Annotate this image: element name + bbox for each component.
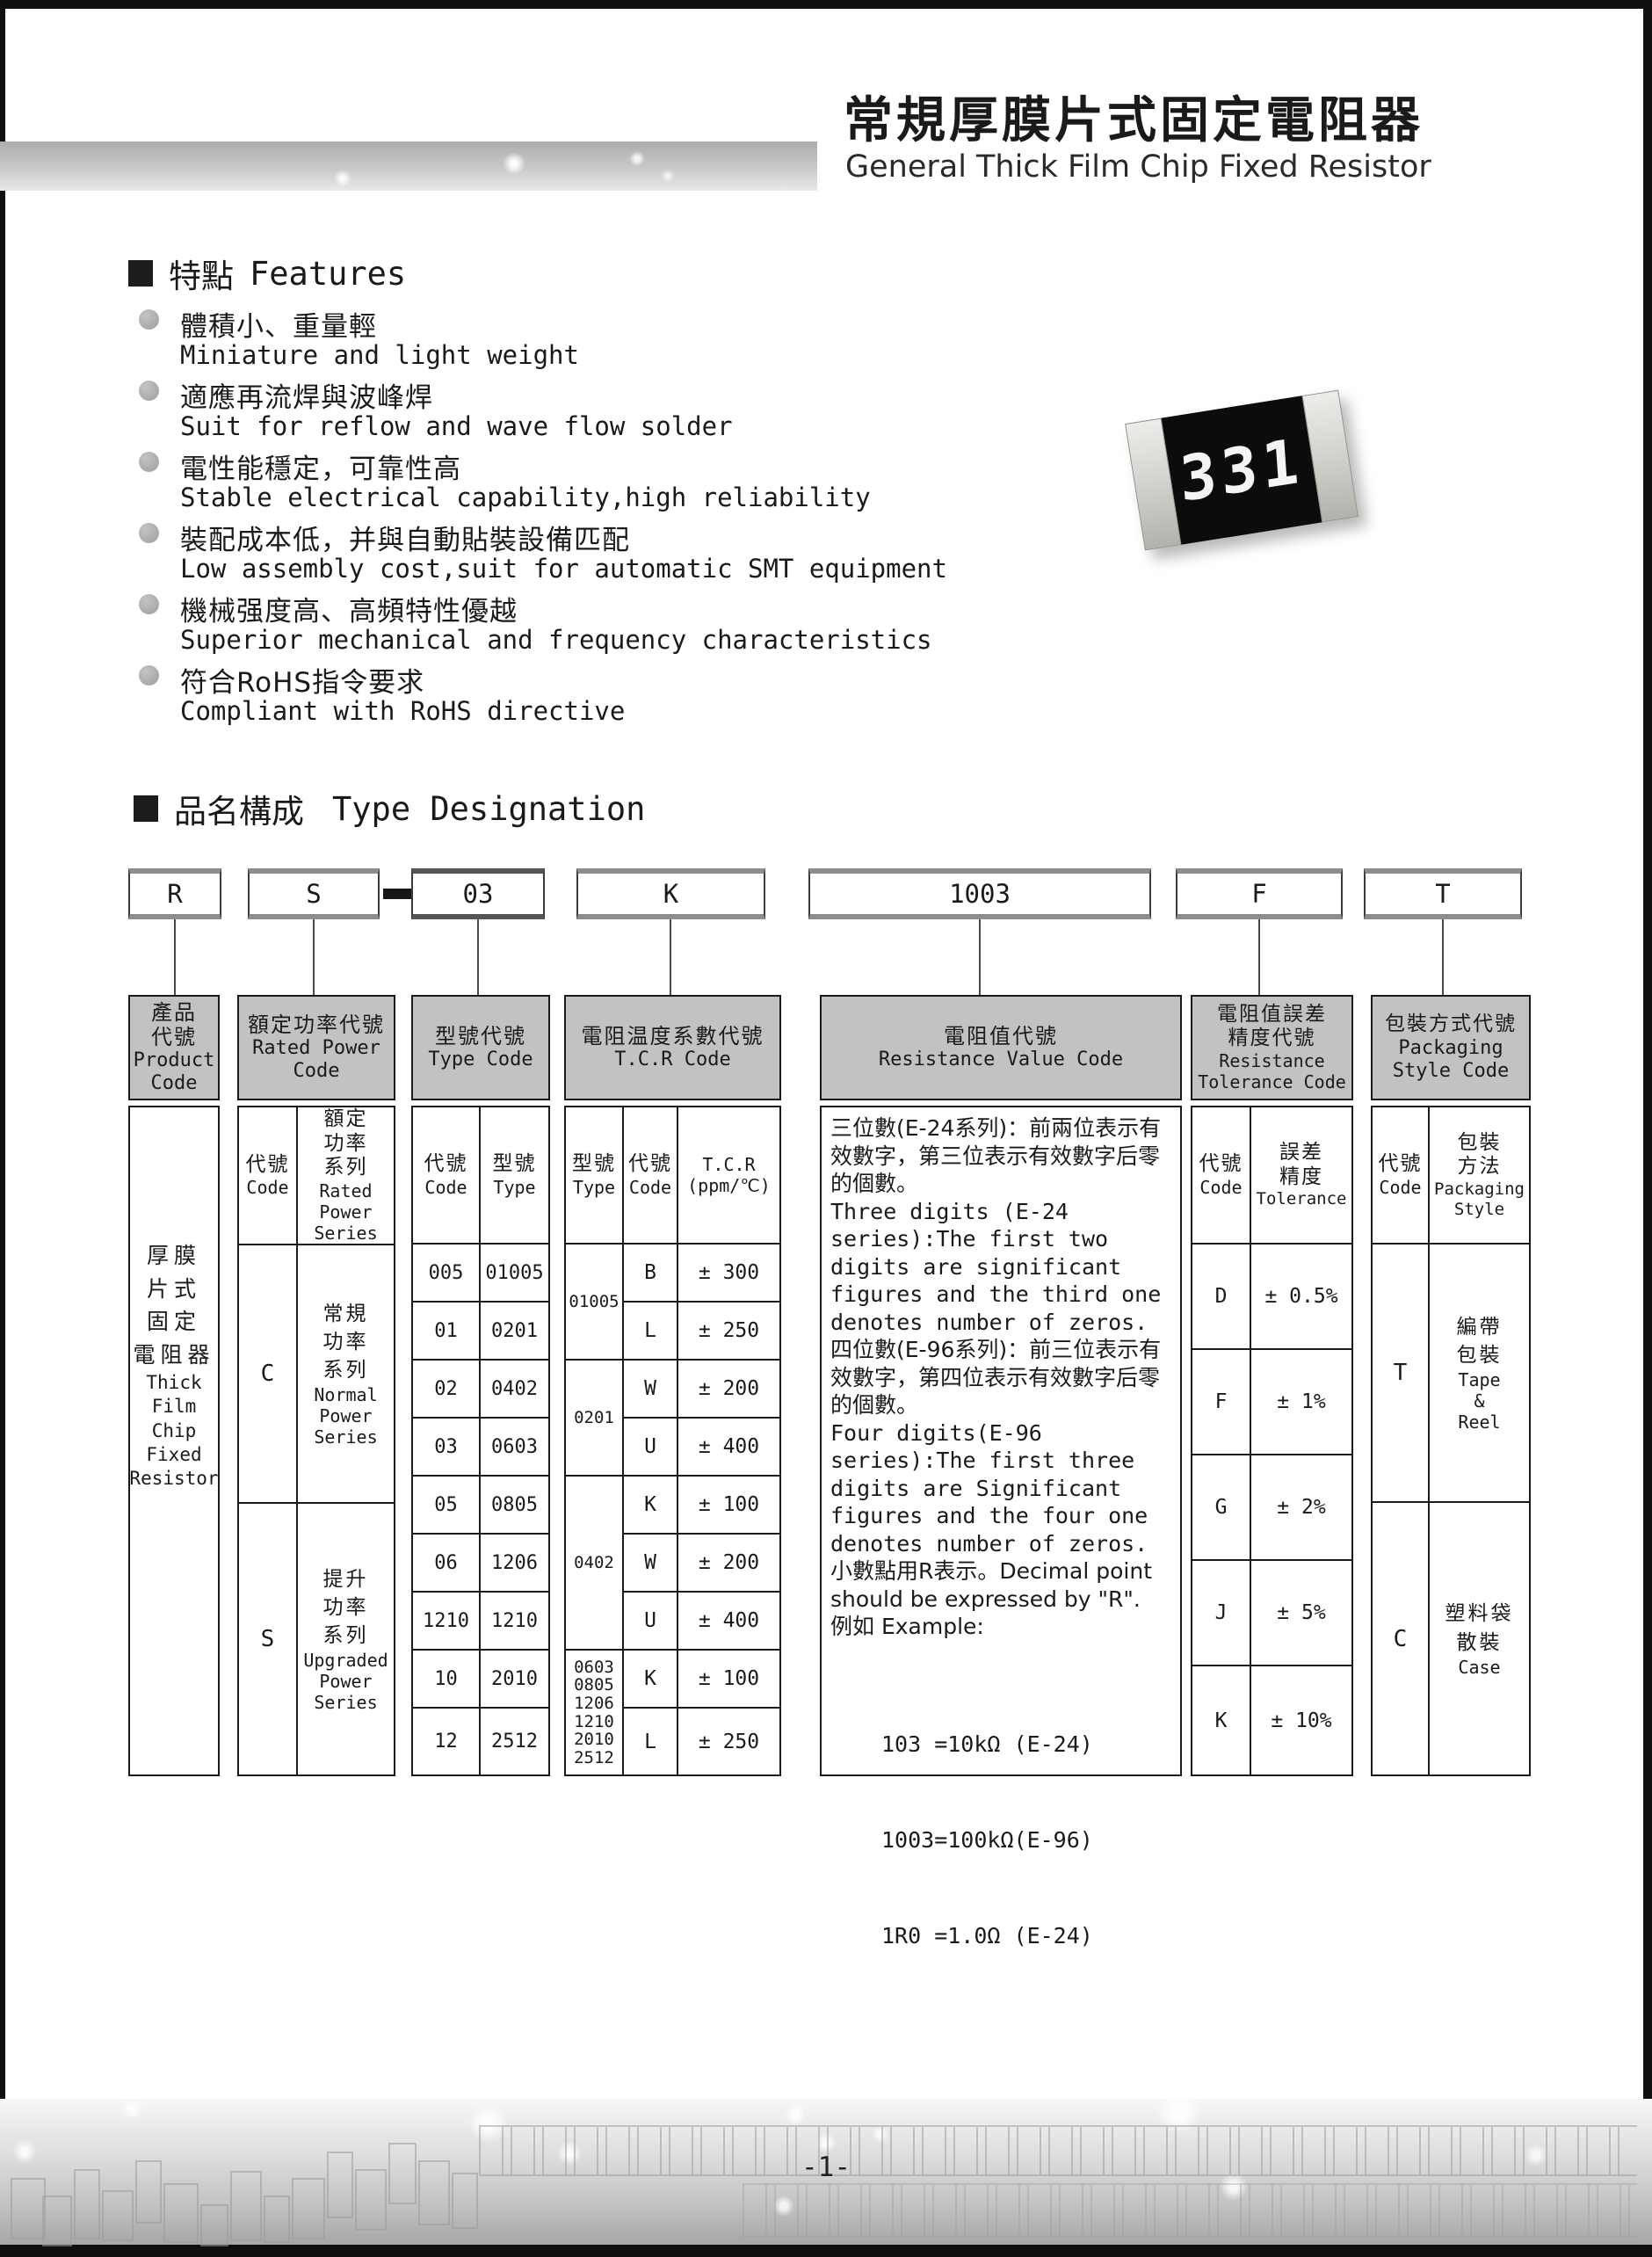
tcr-code: K xyxy=(623,1476,677,1534)
column-header-rated-power: 額定功率代號 Rated Power Code xyxy=(237,995,395,1100)
example-lines: 103 =10kΩ (E-24) 1003=100kΩ(E-96) 1R0 =1… xyxy=(881,1666,1171,2016)
type-code-table: 代號 Code 型號 Type 00501005 010201 020402 0… xyxy=(411,1106,550,1776)
type-size-value: 1206 xyxy=(480,1534,549,1592)
sub-header-cn: 代號 xyxy=(239,1153,296,1178)
tolerance-value: ± 10% xyxy=(1250,1666,1352,1775)
tcr-value: ± 100 xyxy=(677,1650,780,1708)
tolerance-value: ± 1% xyxy=(1250,1349,1352,1455)
tcr-code: B xyxy=(623,1244,677,1302)
connector-line xyxy=(1442,919,1444,995)
sub-header-cn: 代號 xyxy=(1373,1152,1428,1177)
sub-header-cn: 誤差 精度 xyxy=(1251,1141,1351,1189)
sub-header-cn: 代號 xyxy=(1192,1152,1250,1177)
table-row: 代號 Code 誤差 精度 Tolerance xyxy=(1192,1107,1352,1244)
column-body-tolerance: 代號 Code 誤差 精度 Tolerance D± 0.5% F± 1% G±… xyxy=(1191,1106,1353,1776)
packaging-style-cn: 編帶 包裝 xyxy=(1430,1313,1529,1369)
table-row: D± 0.5% xyxy=(1192,1244,1352,1349)
type-code-value: 005 xyxy=(412,1244,480,1302)
tcr-value: ± 200 xyxy=(677,1360,780,1418)
footer-decoration xyxy=(200,2204,228,2246)
feature-item: 適應再流焊與波峰焊 Suit for reflow and wave flow … xyxy=(139,375,1105,446)
tcr-value: ± 100 xyxy=(677,1476,780,1534)
table-row: 122512 xyxy=(412,1708,549,1775)
feature-text-cn: 體積小、重量輕 xyxy=(180,304,377,344)
packaging-style-cn: 塑料袋 散裝 xyxy=(1430,1600,1529,1656)
footer-decoration xyxy=(11,2178,46,2239)
features-heading-en: Features xyxy=(250,255,406,293)
feature-item: 電性能穩定，可靠性高 Stable electrical capability,… xyxy=(139,446,1105,517)
connector-line xyxy=(313,919,315,995)
packaging-style-en: Tape & Reel xyxy=(1430,1369,1529,1433)
sub-header-en: T.C.R (ppm/℃) xyxy=(678,1154,779,1196)
sub-header-cn: 型號 xyxy=(566,1152,622,1177)
column-header-cn: 包裝方式代號 xyxy=(1385,1012,1517,1036)
packaging-table: 代號 Code 包裝 方法 Packaging Style T 編帶 包裝 Ta… xyxy=(1371,1106,1531,1776)
resistor-body: 331 xyxy=(1162,396,1322,545)
type-designation-heading-en: Type Designation xyxy=(332,790,645,828)
feature-text-cn: 電性能穩定，可靠性高 xyxy=(180,446,461,486)
type-size-value: 0805 xyxy=(480,1476,549,1534)
footer-decoration xyxy=(264,2195,290,2243)
footer-decoration xyxy=(163,2183,199,2243)
features-heading: 特點 Features xyxy=(128,250,406,297)
packaging-style-en: Case xyxy=(1430,1657,1529,1678)
column-body-packaging: 代號 Code 包裝 方法 Packaging Style T 編帶 包裝 Ta… xyxy=(1371,1106,1531,1776)
column-header-en: Resistance Tolerance Code xyxy=(1198,1050,1346,1092)
tolerance-table: 代號 Code 誤差 精度 Tolerance D± 0.5% F± 1% G±… xyxy=(1191,1106,1353,1776)
resistor-chip-image: 331 xyxy=(1125,390,1359,551)
table-row: 型號 Type 代號 Code T.C.R (ppm/℃) xyxy=(565,1107,780,1244)
column-header-product: 產品 代號 Product Code xyxy=(128,995,220,1100)
tolerance-code: J xyxy=(1192,1560,1250,1666)
type-code-value: 10 xyxy=(412,1650,480,1708)
tcr-value: ± 250 xyxy=(677,1708,780,1775)
value-rule-cn: 三位數(E-24系列)：前兩位表示有效數字，第三位表示有效數字后零的個數。 xyxy=(830,1114,1171,1198)
page-border-left xyxy=(0,0,5,2257)
value-rule-cn: 四位數(E-96系列)：前三位表示有效數字，第四位表示有效數字后零的個數。 xyxy=(830,1336,1171,1419)
type-designation-heading: 品名構成 Type Designation xyxy=(134,785,645,832)
feature-text-en: Low assembly cost,suit for automatic SMT… xyxy=(180,554,947,584)
tolerance-value: ± 0.5% xyxy=(1250,1244,1352,1349)
tcr-code: L xyxy=(623,1302,677,1360)
tcr-code: U xyxy=(623,1418,677,1476)
sub-header-en: Packaging Style xyxy=(1430,1179,1529,1220)
page-subtitle: General Thick Film Chip Fixed Resistor xyxy=(845,149,1431,185)
features-heading-cn: 特點 xyxy=(169,250,234,297)
power-series-en: Upgraded Power Series xyxy=(298,1650,394,1713)
feature-text-cn: 裝配成本低，并與自動貼裝設備匹配 xyxy=(180,518,630,557)
code-box-type: 03 xyxy=(411,868,545,919)
column-header-cn: 電阻值誤差 精度代號 xyxy=(1217,1003,1327,1050)
column-header-tcr: 電阻温度系數代號 T.C.R Code xyxy=(564,995,781,1100)
tcr-value: ± 250 xyxy=(677,1302,780,1360)
column-header-tolerance: 電阻值誤差 精度代號 Resistance Tolerance Code xyxy=(1191,995,1353,1100)
feature-text-en: Miniature and light weight xyxy=(180,340,579,370)
table-row: T 編帶 包裝 Tape & Reel xyxy=(1372,1244,1530,1502)
sub-header-en: Type xyxy=(481,1177,548,1198)
table-row: 061206 xyxy=(412,1534,549,1592)
tolerance-code: F xyxy=(1192,1349,1250,1455)
tolerance-value: ± 2% xyxy=(1250,1455,1352,1560)
footer-decoration xyxy=(292,2178,325,2239)
sub-header-en: Code xyxy=(1373,1177,1428,1198)
type-code-value: 12 xyxy=(412,1708,480,1775)
column-header-cn: 額定功率代號 xyxy=(248,1012,385,1037)
bullet-icon xyxy=(139,381,159,401)
code-box-product: R xyxy=(128,868,221,919)
header-gradient-band xyxy=(0,142,817,191)
connector-line xyxy=(477,919,479,995)
bullet-icon xyxy=(139,594,159,614)
power-series-cn: 提升 功率 系列 xyxy=(298,1565,394,1651)
type-size-value: 2010 xyxy=(480,1650,549,1708)
tolerance-code: D xyxy=(1192,1244,1250,1349)
tcr-type: 0201 xyxy=(565,1360,623,1476)
type-code-value: 1210 xyxy=(412,1592,480,1650)
column-header-en: Resistance Value Code xyxy=(879,1049,1123,1071)
sub-header-cn: 包裝 方法 xyxy=(1430,1131,1529,1179)
code-box-tcr: K xyxy=(576,868,765,919)
example-line: 1003=100kΩ(E-96) xyxy=(881,1825,1171,1856)
sub-header-en: Code xyxy=(413,1177,479,1198)
page-border-right xyxy=(1643,0,1652,2257)
feature-item: 體積小、重量輕 Miniature and light weight xyxy=(139,304,1105,374)
page-border-bottom xyxy=(0,2245,1652,2257)
connector-line xyxy=(670,919,671,995)
table-row: C 常規 功率 系列 Normal Power Series xyxy=(238,1245,395,1503)
bullet-icon xyxy=(139,665,159,686)
footer-decoration xyxy=(42,2195,72,2246)
feature-item: 符合RoHS指令要求 Compliant with RoHS directive xyxy=(139,660,1105,730)
feature-item: 裝配成本低，并與自動貼裝設備匹配 Low assembly cost,suit … xyxy=(139,518,1105,588)
sub-header-cn: 額定 功率 系列 xyxy=(298,1107,394,1180)
column-body-rated-power: 代號 Code 額定 功率 系列 Rated Power Series C 常規… xyxy=(237,1106,395,1776)
rated-power-table: 代號 Code 額定 功率 系列 Rated Power Series C 常規… xyxy=(237,1106,395,1776)
table-row: S 提升 功率 系列 Upgraded Power Series xyxy=(238,1503,395,1775)
power-code: S xyxy=(238,1503,297,1775)
column-body-resistance-value: 三位數(E-24系列)：前兩位表示有效數字，第三位表示有效數字后零的個數。 Th… xyxy=(820,1106,1182,1776)
feature-text-en: Stable electrical capability,high reliab… xyxy=(180,483,871,512)
column-header-resistance-value: 電阻值代號 Resistance Value Code xyxy=(820,995,1182,1100)
type-designation-heading-cn: 品名構成 xyxy=(174,785,304,832)
tcr-type: 0603 0805 1206 1210 2010 2512 xyxy=(565,1650,623,1775)
table-row: 代號 Code 額定 功率 系列 Rated Power Series xyxy=(238,1107,395,1245)
feature-text-en: Superior mechanical and frequency charac… xyxy=(180,625,932,655)
type-size-value: 0201 xyxy=(480,1302,549,1360)
footer-decoration xyxy=(743,2183,1637,2238)
sub-header-en: Code xyxy=(1192,1177,1250,1198)
example-label: 例如 Example: xyxy=(830,1613,1171,1641)
tcr-value: ± 400 xyxy=(677,1418,780,1476)
table-row: 102010 xyxy=(412,1650,549,1708)
table-row: 0402 K ± 100 xyxy=(565,1476,780,1534)
type-code-value: 02 xyxy=(412,1360,480,1418)
page-number: -1- xyxy=(0,2152,1652,2183)
column-header-cn: 電阻值代號 xyxy=(944,1024,1058,1049)
table-row: 0201 W ± 200 xyxy=(565,1360,780,1418)
tcr-table: 型號 Type 代號 Code T.C.R (ppm/℃) 01005 B ± … xyxy=(564,1106,781,1776)
column-body-type-code: 代號 Code 型號 Type 00501005 010201 020402 0… xyxy=(411,1106,550,1776)
table-row: J± 5% xyxy=(1192,1560,1352,1666)
product-description-en: Thick Film Chip Fixed Resistor xyxy=(129,1371,218,1491)
power-series-cn: 常規 功率 系列 xyxy=(298,1300,394,1385)
page-border-top xyxy=(0,0,1652,9)
power-series-en: Normal Power Series xyxy=(298,1384,394,1448)
bullet-icon xyxy=(139,309,159,330)
packaging-code: T xyxy=(1372,1244,1429,1502)
table-row: 020402 xyxy=(412,1360,549,1418)
tcr-type: 01005 xyxy=(565,1244,623,1360)
bullet-icon xyxy=(139,452,159,472)
value-rule-en: Four digits(E-96 series):The first three… xyxy=(830,1419,1171,1558)
column-header-en: T.C.R Code xyxy=(614,1049,730,1071)
type-code-value: 06 xyxy=(412,1534,480,1592)
table-row: 01005 B ± 300 xyxy=(565,1244,780,1302)
table-row: 代號 Code 包裝 方法 Packaging Style xyxy=(1372,1107,1530,1244)
feature-text-cn: 符合RoHS指令要求 xyxy=(180,660,424,700)
tcr-value: ± 300 xyxy=(677,1244,780,1302)
column-header-en: Product Code xyxy=(134,1049,215,1095)
page-title: 常規厚膜片式固定電阻器 xyxy=(844,81,1424,152)
feature-text-en: Suit for reflow and wave flow solder xyxy=(180,411,733,441)
feature-text-en: Compliant with RoHS directive xyxy=(180,696,625,726)
tolerance-code: G xyxy=(1192,1455,1250,1560)
power-code: C xyxy=(238,1245,297,1503)
tcr-code: U xyxy=(623,1592,677,1650)
feature-text-cn: 機械强度高、高頻特性優越 xyxy=(180,589,518,628)
sub-header-en: Code xyxy=(624,1177,677,1198)
tcr-code: W xyxy=(623,1534,677,1592)
resistor-marking: 331 xyxy=(1177,425,1305,516)
sub-header-cn: 代號 xyxy=(413,1152,479,1177)
sub-header-en: Rated Power Series xyxy=(298,1180,394,1244)
column-header-cn: 型號代號 xyxy=(435,1024,526,1049)
feature-item: 機械强度高、高頻特性優越 Superior mechanical and fre… xyxy=(139,589,1105,659)
datasheet-page: 常規厚膜片式固定電阻器 General Thick Film Chip Fixe… xyxy=(0,0,1652,2257)
table-row: K± 10% xyxy=(1192,1666,1352,1775)
connector-line xyxy=(174,919,176,995)
column-header-en: Packaging Style Code xyxy=(1393,1037,1509,1083)
table-row: G± 2% xyxy=(1192,1455,1352,1560)
tcr-code: K xyxy=(623,1650,677,1708)
code-separator-dash xyxy=(383,889,411,899)
type-size-value: 0603 xyxy=(480,1418,549,1476)
table-row: C 塑料袋 散裝 Case xyxy=(1372,1502,1530,1775)
column-body-tcr: 型號 Type 代號 Code T.C.R (ppm/℃) 01005 B ± … xyxy=(564,1106,781,1776)
type-size-value: 2512 xyxy=(480,1708,549,1775)
table-row: 00501005 xyxy=(412,1244,549,1302)
value-rule-en: Three digits (E-24 series):The first two… xyxy=(830,1198,1171,1337)
type-size-value: 0402 xyxy=(480,1360,549,1418)
bullet-icon xyxy=(139,523,159,543)
sub-header-cn: 代號 xyxy=(624,1152,677,1177)
table-row: 代號 Code 型號 Type xyxy=(412,1107,549,1244)
footer-decoration xyxy=(102,2190,134,2241)
tcr-value: ± 200 xyxy=(677,1534,780,1592)
table-row: 12101210 xyxy=(412,1592,549,1650)
table-row: 030603 xyxy=(412,1418,549,1476)
tcr-code: L xyxy=(623,1708,677,1775)
tolerance-code: K xyxy=(1192,1666,1250,1775)
type-size-value: 01005 xyxy=(480,1244,549,1302)
feature-text-cn: 適應再流焊與波峰焊 xyxy=(180,375,433,415)
packaging-code: C xyxy=(1372,1502,1429,1775)
product-description-cn: 厚膜 片式 固定 電阻器 xyxy=(133,1239,214,1371)
type-code-value: 03 xyxy=(412,1418,480,1476)
column-header-en: Rated Power Code xyxy=(252,1037,380,1083)
table-row: 0603 0805 1206 1210 2010 2512 K ± 100 xyxy=(565,1650,780,1708)
sub-header-en: Code xyxy=(239,1177,296,1198)
value-rule-mixed: 小數點用R表示。Decimal point should be expresse… xyxy=(830,1557,1171,1613)
type-code-value: 05 xyxy=(412,1476,480,1534)
column-header-type-code: 型號代號 Type Code xyxy=(411,995,550,1100)
tcr-value: ± 400 xyxy=(677,1592,780,1650)
table-row: 010201 xyxy=(412,1302,549,1360)
tcr-type: 0402 xyxy=(565,1476,623,1650)
code-box-resistance: 1003 xyxy=(808,868,1151,919)
section-marker-icon xyxy=(134,795,158,822)
type-code-value: 01 xyxy=(412,1302,480,1360)
code-box-packaging: T xyxy=(1364,868,1522,919)
column-header-en: Type Code xyxy=(428,1049,533,1071)
tolerance-value: ± 5% xyxy=(1250,1560,1352,1666)
example-line: 103 =10kΩ (E-24) xyxy=(881,1729,1171,1760)
column-header-cn: 電阻温度系數代號 xyxy=(582,1024,764,1049)
section-marker-icon xyxy=(128,260,153,287)
type-size-value: 1210 xyxy=(480,1592,549,1650)
connector-line xyxy=(1258,919,1260,995)
sub-header-cn: 型號 xyxy=(481,1152,548,1177)
example-line: 1R0 =1.0Ω (E-24) xyxy=(881,1920,1171,1952)
table-row: 050805 xyxy=(412,1476,549,1534)
code-box-tolerance: F xyxy=(1176,868,1343,919)
table-row: F± 1% xyxy=(1192,1349,1352,1455)
code-box-power: S xyxy=(248,868,380,919)
column-header-cn: 產品 代號 xyxy=(151,1000,197,1050)
sub-header-en: Type xyxy=(566,1177,622,1198)
connector-line xyxy=(979,919,981,995)
column-body-product: 厚膜 片式 固定 電阻器 Thick Film Chip Fixed Resis… xyxy=(128,1106,220,1776)
column-header-packaging: 包裝方式代號 Packaging Style Code xyxy=(1371,995,1531,1100)
tcr-code: W xyxy=(623,1360,677,1418)
sub-header-en: Tolerance xyxy=(1251,1189,1351,1209)
